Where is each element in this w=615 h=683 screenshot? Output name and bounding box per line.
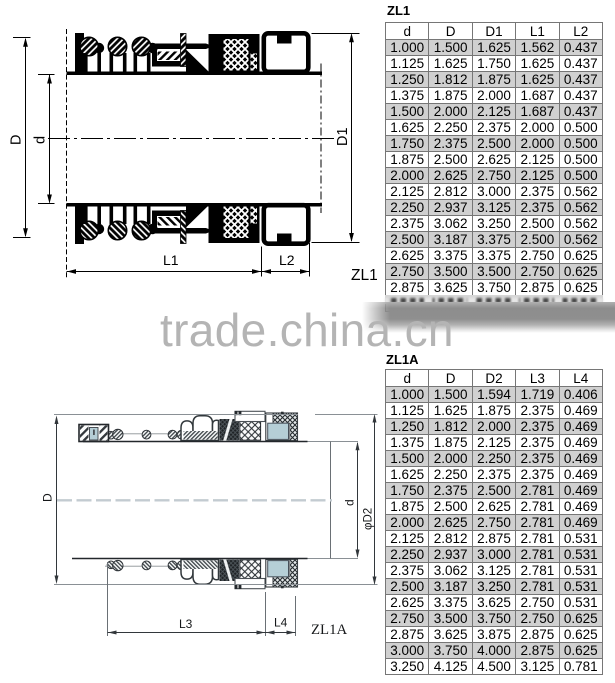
svg-text:D: D	[41, 493, 55, 502]
svg-text:ZL1: ZL1	[351, 267, 378, 284]
svg-text:L1: L1	[163, 252, 179, 268]
svg-text:ZL1A: ZL1A	[311, 622, 347, 638]
svg-text:L2: L2	[279, 252, 295, 268]
svg-text:d: d	[33, 136, 49, 144]
svg-text:d: d	[343, 499, 357, 506]
svg-text:D1: D1	[335, 127, 351, 146]
svg-text:L4: L4	[274, 616, 288, 630]
svg-text:L3: L3	[179, 617, 193, 631]
svg-text:φD2: φD2	[363, 508, 375, 530]
svg-text:D: D	[9, 135, 25, 145]
